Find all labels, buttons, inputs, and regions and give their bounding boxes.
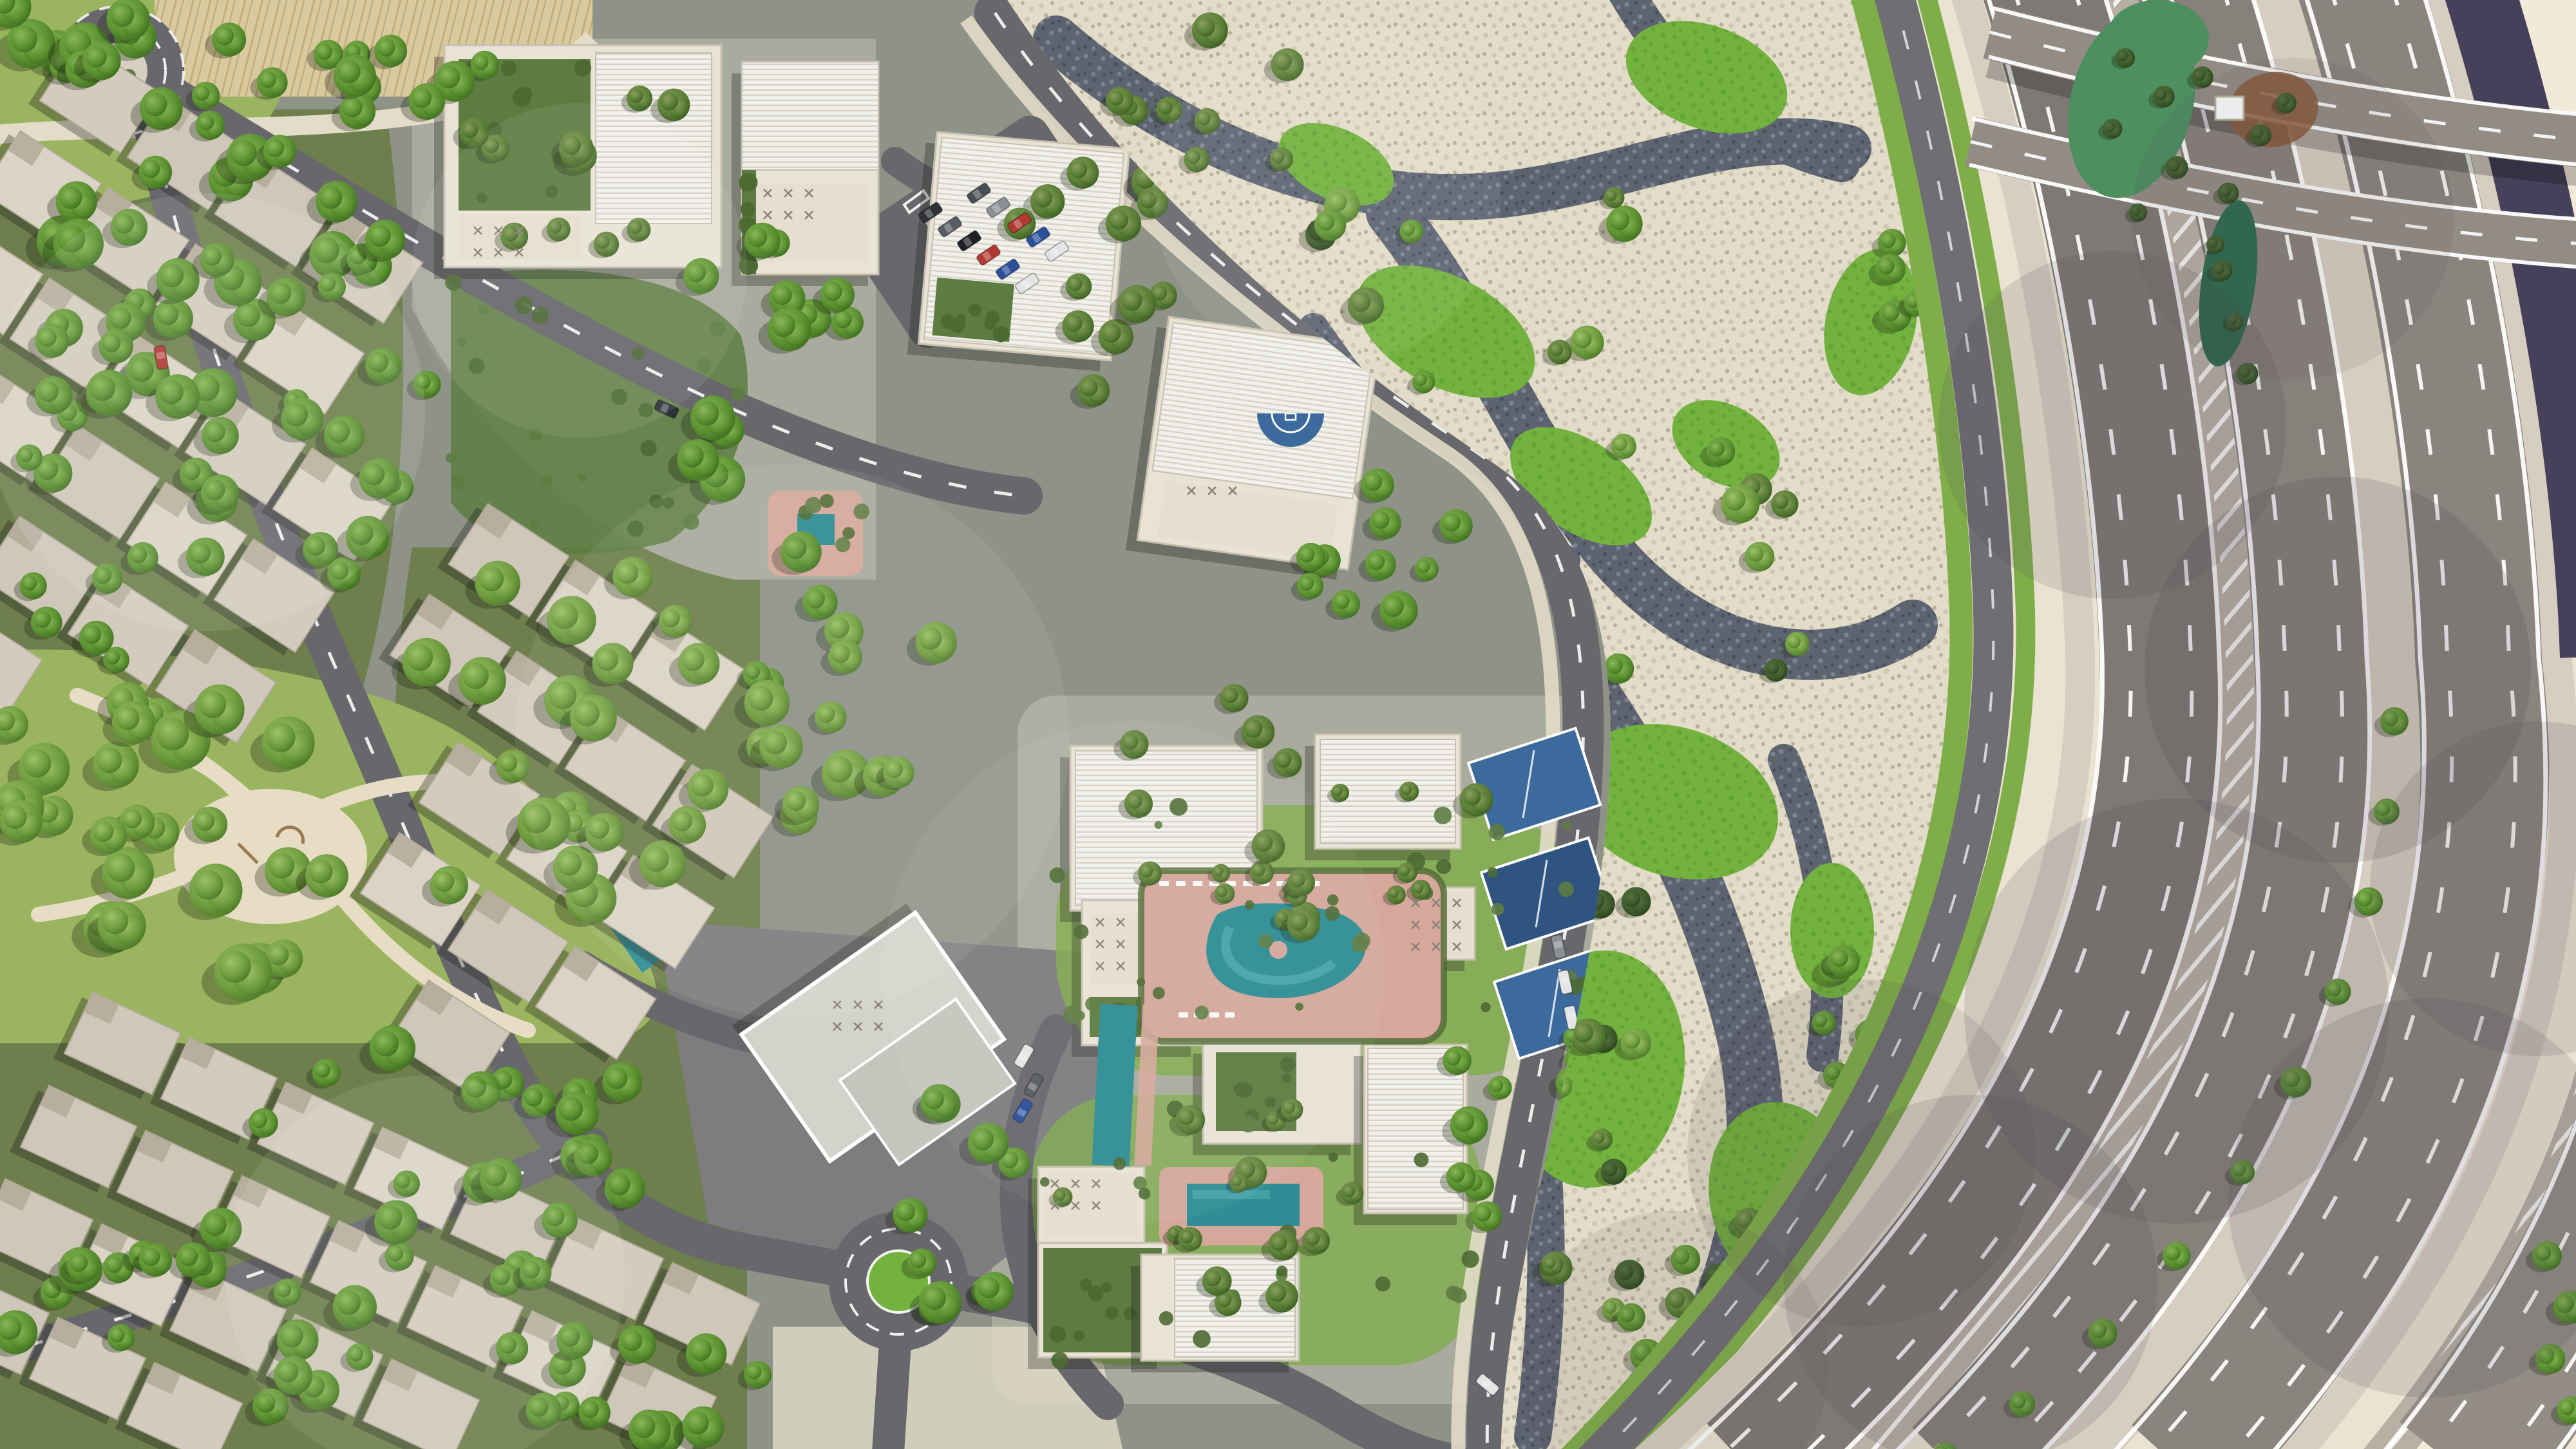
aerial-site-plan [0, 0, 2576, 1449]
